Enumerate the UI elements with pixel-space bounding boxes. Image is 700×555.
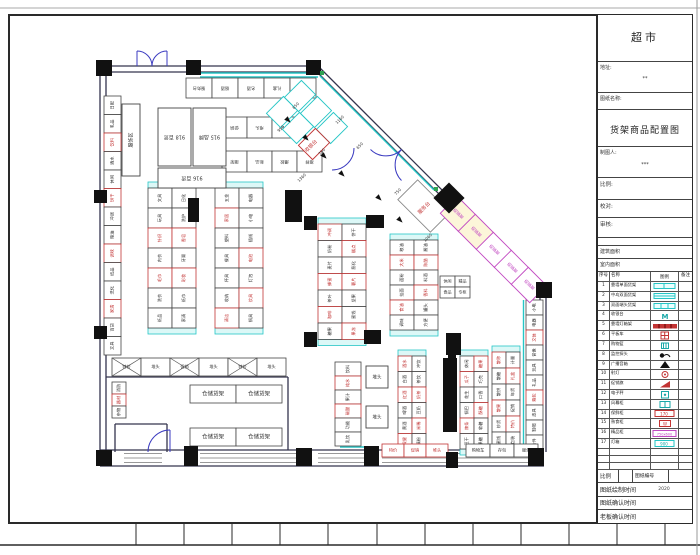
legend-row-name <box>609 456 650 462</box>
shelf-cell-label: 家清 <box>109 305 116 313</box>
blocked-fixture <box>443 358 457 432</box>
shelf-cell-label: 乳品 <box>109 120 116 128</box>
shelf-cell-label: 小电 <box>247 213 254 222</box>
shelf-cell-label: 端架 <box>230 159 238 166</box>
legend-row-name: 风幕柜 <box>609 400 650 409</box>
shelf-cell-label: 礼品 <box>531 378 538 386</box>
shelf-cell-label: 酒水 <box>109 156 116 165</box>
shelf-cell-label: 果汁 <box>344 392 351 401</box>
shelf-cell-label: 豆奶 <box>415 406 422 414</box>
shelf-cell-label: 米稀 <box>415 421 422 430</box>
boss-time-label: 老板确认时间 <box>598 510 636 523</box>
legend-row: 16精品柜750x600 <box>598 429 692 439</box>
shelf-cell-label: 果冻 <box>350 327 357 335</box>
shelf-cell-label: 酒水 <box>401 359 408 368</box>
legend-row: 17灯箱900 <box>598 439 692 449</box>
legend-row-symbol <box>650 370 678 379</box>
legend-row-note <box>678 419 692 428</box>
gondola-endcap <box>215 328 263 334</box>
shelf-cell-label: 糖果 <box>477 359 484 368</box>
legend-row-note <box>678 282 692 291</box>
shelf-cell-label: 休闲 <box>463 360 470 368</box>
shelf-cell-label: 粮油 <box>398 243 405 251</box>
legend-row: 12电子秤 <box>598 390 692 400</box>
footer-scale-label: 比例 <box>598 470 618 482</box>
legend-row-no: 8 <box>598 351 609 360</box>
legend-row-name: 平板车 <box>609 331 650 340</box>
fixture-box-label: 915 品牌 <box>199 134 220 141</box>
column <box>364 446 379 466</box>
scale-label: 比例: <box>600 180 613 188</box>
titleblock-building-area-row: 建筑面积 <box>598 246 692 259</box>
blocked-fixture <box>188 198 199 222</box>
shelf-cell-label: 堆头 <box>433 447 441 454</box>
shelf-cell-label: 口香 <box>477 390 484 399</box>
shelf-cell-label: 日化 <box>180 193 187 202</box>
legend-row-name: 熟食柜 <box>609 419 650 428</box>
shelf-cell-label: 购物车 <box>472 447 485 454</box>
shelf-cell-label: 咖啡 <box>326 310 333 319</box>
dimension-label: 750 <box>393 187 402 196</box>
shelf-cell-label: 冲饮 <box>415 359 422 368</box>
legend-row-no: 2 <box>598 292 609 301</box>
column <box>94 190 107 203</box>
dimension-arrow <box>338 170 346 178</box>
shelf-cell-label: 蜜饯 <box>350 311 357 319</box>
legend-row: 9广播音箱 <box>598 361 692 371</box>
shelf-cell-label: 堆头 <box>209 363 217 370</box>
titleblock-drafter-row: 制图人: *** <box>598 147 692 178</box>
legend-row-no: 5 <box>598 321 609 330</box>
legend-col-no: 序号 <box>598 272 609 281</box>
legend-col-sym: 图例 <box>650 272 678 281</box>
legend-row-no: 10 <box>598 370 609 379</box>
legend-row-no: 7 <box>598 341 609 350</box>
shelf-cell-label: 蜜饯 <box>495 436 502 444</box>
draw-time-row: 图纸绘制时间 2020 <box>598 483 692 497</box>
legend-row-note <box>678 439 692 448</box>
shelf-cell-label: 黄酒 <box>401 422 408 430</box>
shelf-cell-label: 奶茶 <box>415 390 422 399</box>
shelf-cell-label: 小电 <box>531 303 538 312</box>
shelf-cell-label: 奶粉 <box>326 244 333 253</box>
svg-text:M: M <box>661 313 668 320</box>
door-jamb-mark <box>320 71 324 75</box>
legend-row-name: 广播音箱 <box>609 361 650 370</box>
titleblock-proof-row: 校对: <box>598 200 692 218</box>
legend-row-symbol <box>650 463 678 469</box>
shelf-cell-label: 文具 <box>109 341 116 350</box>
legend-row-symbol <box>650 292 678 301</box>
fixture-box-label: 堆头 <box>373 414 382 421</box>
legend-row: 14保鲜柜170 <box>598 410 692 420</box>
shelf-cell-label: 纯水 <box>344 378 350 387</box>
shelf-cell-label: 新品 <box>255 159 263 166</box>
shelf-cell-label: 年货 <box>509 388 516 396</box>
titleblock-review-row: 审核: <box>598 218 692 238</box>
shelf-cell-label: 辣条 <box>463 421 470 430</box>
shelf-cell-label: 仓储货架 <box>202 433 225 441</box>
legend-row-note <box>678 292 692 301</box>
drawing-no-label: 图纸编号 <box>632 470 668 482</box>
blocked-fixture <box>448 352 456 364</box>
legend-row-name <box>609 463 650 469</box>
shelf-cell-label: 仓储货架 <box>248 433 271 441</box>
titleblock-project-row: 超市 <box>598 15 692 62</box>
fixture-box-label: 916 百货 <box>181 175 202 182</box>
legend-row <box>598 449 692 456</box>
shelf-cell-label: 特价 <box>389 447 398 453</box>
legend-row-name: 射灯 <box>609 370 650 379</box>
address-value: ** <box>598 76 692 82</box>
shelf-cell-label: 啤酒 <box>401 406 408 414</box>
dimension-arrow <box>375 194 383 202</box>
shelf-cell-label: 粮油 <box>109 231 116 239</box>
shelf-cell-label: 挂面 <box>398 288 405 296</box>
shelf-cell-label: 锅具 <box>247 313 254 322</box>
drafter-value: *** <box>598 162 692 168</box>
legend-row-symbol <box>650 380 678 389</box>
shelf-cell-label: 料酒 <box>422 273 429 281</box>
shelf-cell-label: 洗护 <box>180 214 187 222</box>
legend-table: 1靠墙单面货架2中岛双面货架3双面端头货架4收银台M5靠墙灯箱架6平板车7购物篮… <box>598 282 692 470</box>
legend-row: 4收银台M <box>598 311 692 321</box>
shelf-cell-label: 大米 <box>398 258 405 267</box>
legend-row-symbol <box>650 449 678 455</box>
column <box>306 60 321 75</box>
legend-row <box>598 456 692 463</box>
shelf-cell-label: 仓储货架 <box>202 390 225 398</box>
legend-row: 15熟食柜W <box>598 419 692 429</box>
shelf-cell-label: 炊具 <box>247 293 254 302</box>
shelf-cell-label: 散糖 <box>495 371 502 380</box>
shelf-cell-label: 散称 <box>495 356 502 364</box>
shelf-cell-label: 洗化 <box>109 285 116 294</box>
legend-row-no: 13 <box>598 400 609 409</box>
shelf-cell-label: 塑料 <box>223 233 230 242</box>
shelf-cell-label: 电器 <box>247 193 254 202</box>
shelf-cell-label: 饮料 <box>344 364 351 373</box>
shelf-cell-label: 香料 <box>422 288 429 297</box>
blocked-fixture <box>285 190 302 222</box>
legend-row: 10射灯 <box>598 370 692 380</box>
shelf-cell-label: 茶饮 <box>415 374 422 383</box>
confirm-time-label: 图纸确认时间 <box>598 497 636 509</box>
legend-row-name: 收银台 <box>609 311 650 320</box>
shelf-cell-label: 存包 <box>498 447 507 453</box>
shelf-cell-label: 饼干 <box>109 194 116 202</box>
shelf-cell-label: 休闲 <box>109 175 116 183</box>
shelf-cell-label: 红酒 <box>401 391 408 399</box>
shelf-cell-label: 炒货 <box>495 420 502 428</box>
shelf-cell-label: 促销 <box>230 125 238 132</box>
confirm-time-row: 图纸确认时间 <box>598 497 692 510</box>
gondola-endcap <box>390 330 438 336</box>
column <box>96 450 112 466</box>
shelf-cell-label: 乳饮 <box>344 434 351 443</box>
shelf-cell-label: 香皂 <box>180 234 187 242</box>
legend-row-name: 靠墙单面货架 <box>609 282 650 291</box>
shelf-cell-label: 纸品 <box>156 314 163 322</box>
legend-row: 1靠墙单面货架 <box>598 282 692 292</box>
legend-row-note <box>678 463 692 469</box>
legend-row-no: 4 <box>598 311 609 320</box>
shelf-cell-label: 服务台 <box>193 85 206 92</box>
gondola-endcap <box>148 328 196 334</box>
shelf-cell-label: 清洁 <box>223 314 230 322</box>
legend-row: 13风幕柜 <box>598 400 692 410</box>
legend-row-symbol <box>650 351 678 360</box>
column <box>94 326 107 339</box>
legend-row-name: 保鲜柜 <box>609 410 650 419</box>
legend-row-symbol <box>650 302 678 311</box>
legend-row-no <box>598 449 609 455</box>
legend-row-symbol <box>650 331 678 340</box>
svg-text:W: W <box>663 422 667 427</box>
titleblock-interior-area-row: 室内面积 <box>598 259 692 272</box>
interior-area-label: 室内面积 <box>600 261 620 268</box>
gondola-endcap <box>492 346 520 352</box>
project-title: 超市 <box>598 29 692 45</box>
shelf-cell-label: 烟酒 <box>221 85 229 92</box>
shelf-cell-label: 特价 <box>509 419 515 428</box>
title-block: 超市 地址: ** 图纸名称: 货架商品配置图 制图人: *** 比例: 校对:… <box>596 15 692 523</box>
legend-row-note <box>678 370 692 379</box>
legend-row-symbol: 170 <box>650 410 678 419</box>
shelf-cell-label: 洗衣 <box>156 293 163 302</box>
shelf-cell-label: 堆头 <box>267 363 275 370</box>
shelf-cell-label: 礼盒 <box>509 371 516 380</box>
shelf-cell-label: 礼盒 <box>272 85 281 92</box>
door-arc <box>332 148 354 170</box>
drawing-no-value <box>668 470 692 482</box>
shelf-cell-label: 面粉 <box>398 273 405 282</box>
drawing-name-label: 图纸名称: <box>600 95 622 102</box>
titleblock-dwgtitle-row: 货架商品配置图 <box>598 110 692 147</box>
legend-row-no: 17 <box>598 439 609 448</box>
shelf-cell-label: 冲调 <box>109 212 116 220</box>
legend-row-note <box>678 390 692 399</box>
shelf-cell-label: 薯片 <box>350 278 357 286</box>
gondola-endcap <box>398 350 426 356</box>
legend-row-note <box>678 456 692 462</box>
shelf-cell-label: 食油 <box>398 303 405 311</box>
legend-row-no: 9 <box>598 361 609 370</box>
dimension-label: 650 <box>355 141 364 150</box>
footer-number-row: 比例 图纸编号 <box>598 470 692 483</box>
column <box>364 330 381 344</box>
boss-time-row: 老板确认时间 <box>598 510 692 523</box>
legend-row-symbol: 750x600 <box>650 429 678 438</box>
shelf-cell-label: 文具 <box>156 193 163 202</box>
shelf-cell-label: 仓储货架 <box>248 390 271 398</box>
column <box>296 448 312 466</box>
legend-row-no: 12 <box>598 390 609 399</box>
legend-row-note <box>678 380 692 389</box>
legend-row-no: 15 <box>598 419 609 428</box>
legend-row-symbol <box>650 321 678 330</box>
legend-row-symbol <box>650 390 678 399</box>
address-label: 地址: <box>600 64 612 71</box>
shelf-cell-label: 促销 <box>180 363 188 370</box>
shelf-cell-label: 饼干 <box>350 228 357 236</box>
legend-row-no: 6 <box>598 331 609 340</box>
shelf-cell-label: 爆款 <box>280 159 289 166</box>
legend-row-note <box>678 361 692 370</box>
shelf-cell-label: 蜂蜜 <box>326 278 333 286</box>
shelf-cell-label: 软糖 <box>477 421 484 430</box>
shelf-cell-label: 堆头 <box>255 125 263 132</box>
legend-row-no: 11 <box>598 380 609 389</box>
shelf-cell-label: 堆头 <box>151 363 159 370</box>
shelf-cell-label: 散饼 <box>495 388 502 396</box>
shelf-cell-label: 杂物 <box>115 408 122 416</box>
legend-row-no <box>598 463 609 469</box>
shelf-cell-label: 陈醋 <box>422 258 429 266</box>
shelf-cell-label: 方便 <box>422 318 429 327</box>
gondola-endcap <box>460 350 488 356</box>
column <box>304 216 317 230</box>
legend-col-name: 名称 <box>609 272 650 281</box>
shelf-cell-label: 家清 <box>180 314 187 322</box>
shelf-cell-label: 食品 <box>444 289 452 295</box>
legend-row-note <box>678 302 692 311</box>
shelf-cell-label: 专柜 <box>459 289 467 295</box>
shelf-cell-label: 白酒 <box>401 375 408 383</box>
svg-text:170: 170 <box>660 412 668 417</box>
shelf-cell-label: 调味 <box>109 248 116 257</box>
shelf-cell-label: 冲调 <box>326 228 333 236</box>
legend-row-name: 购物篮 <box>609 341 650 350</box>
svg-text:750x600: 750x600 <box>656 432 671 436</box>
legend-row-note <box>678 321 692 330</box>
shelf-cell-label: 皮具 <box>531 408 538 417</box>
shelf-cell-label: 糖果 <box>326 326 333 335</box>
shelf-cell-label: 针织 <box>156 234 163 242</box>
shelf-cell-label: 精品 <box>459 278 467 284</box>
shelf-cell-label: 碳酸 <box>344 406 351 415</box>
shelf-cell-label: 坚果 <box>350 293 357 302</box>
legend-row-name: 双面端头货架 <box>609 302 650 311</box>
legend-row-name: 电子秤 <box>609 390 650 399</box>
shelf-cell-label: 茶叶 <box>326 293 333 302</box>
legend-row-note <box>678 331 692 340</box>
shelf-cell-label: 特价 <box>122 363 131 369</box>
shelf-cell-label: 内衣 <box>156 253 163 262</box>
legend-row-note <box>678 429 692 438</box>
shelf-cell-label: 罐头 <box>422 303 429 311</box>
legend-row-note <box>678 341 692 350</box>
column <box>528 448 544 466</box>
shelf-cell-label: 饮料 <box>109 137 116 146</box>
shelf-cell-label: 音像 <box>531 348 538 357</box>
shelf-cell-label: 电池 <box>247 253 253 262</box>
shelf-cell-label: 酥糖 <box>477 405 484 414</box>
dimension-arrow <box>396 216 404 224</box>
legend-row-name: 靠墙灯箱架 <box>609 321 650 330</box>
shelf-cell-label: 包装 <box>509 435 516 444</box>
draw-time-label: 图纸绘制时间 <box>598 483 636 496</box>
gondola-endcap <box>318 218 366 224</box>
shelf-cell-label: 五金 <box>223 193 229 202</box>
legend-row-symbol <box>650 456 678 462</box>
column <box>96 60 112 76</box>
shelf-cell-label: 百货 <box>109 323 116 331</box>
legend-row-name: 促销旗 <box>609 380 650 389</box>
review-label: 审核: <box>600 220 613 228</box>
shelf-cell-label: 毛巾 <box>156 274 163 282</box>
shelf-cell-label: 收纳 <box>223 294 230 302</box>
legend-row-symbol: 900 <box>650 439 678 448</box>
column <box>186 60 201 75</box>
legend-col-note: 备注 <box>678 272 692 281</box>
legend-row-no <box>598 456 609 462</box>
shelf-cell-label: 计量 <box>509 356 516 364</box>
legend-row-note <box>678 400 692 409</box>
shelf-cell-label: 杯具 <box>223 273 230 282</box>
column <box>304 332 317 347</box>
shelf-cell-label: 瓜子 <box>463 375 469 383</box>
shelf-cell-label: 纸品 <box>109 268 116 276</box>
column <box>536 282 552 298</box>
shelf-cell-label: 消防 <box>115 384 122 392</box>
legend-row-note <box>678 410 692 419</box>
shelf-cell-label: 灯泡 <box>247 273 254 282</box>
shelf-cell-label: 牙膏 <box>180 254 187 262</box>
legend-row-no: 14 <box>598 410 609 419</box>
footer-scale-value <box>618 470 632 482</box>
legend-row-no: 16 <box>598 429 609 438</box>
legend-row <box>598 463 692 470</box>
legend-row: 2中岛双面货架 <box>598 292 692 302</box>
shelf-cell-label: 功能 <box>344 420 351 429</box>
shelf-cell-label: 促销 <box>411 447 419 454</box>
building-area-label: 建筑面积 <box>600 248 620 255</box>
legend-row: 5靠墙灯箱架 <box>598 321 692 331</box>
legend-row-name: 监控探头 <box>609 351 650 360</box>
drawing-sheet: { "title_block": { "supermarket": "超市", … <box>0 0 700 555</box>
shelf-cell-label: 休闲 <box>444 278 452 284</box>
door-arc <box>371 150 402 156</box>
legend-row-symbol <box>650 361 678 370</box>
legend-row-note <box>678 449 692 455</box>
gondola-endcap <box>318 340 366 346</box>
column <box>446 333 461 355</box>
drawing-title: 货架商品配置图 <box>598 123 692 136</box>
legend-header: 序号 名称 图例 备注 <box>598 272 692 282</box>
dimension-label: 1360 <box>296 172 307 183</box>
door-arc <box>152 51 167 66</box>
legend-row-note <box>678 351 692 360</box>
shelf-cell-label: 花生 <box>463 391 470 399</box>
shelf-cell-label: 麦片 <box>326 261 333 269</box>
fixture-box-label: 堆头 <box>373 374 382 381</box>
shelf-cell-label: 糕点 <box>350 245 357 253</box>
shelf-cell-label: 器材 <box>115 396 122 404</box>
shelf-cell-label: 文体 <box>531 333 538 342</box>
legend-row-no: 1 <box>598 282 609 291</box>
fixture-box-label: 服饰区 <box>128 132 135 147</box>
legend-row-symbol: M <box>650 311 678 320</box>
legend-row-symbol <box>650 341 678 350</box>
legend-row-note <box>678 311 692 320</box>
column <box>184 446 198 466</box>
shelf-cell-label: 箱包 <box>531 393 538 402</box>
floor-plan: 日配乳品饮料酒水休闲饼干冲调粮油调味纸品洗化家清百货文具服务台烟酒名酒礼盒保健促… <box>0 0 700 555</box>
legend-row-no: 3 <box>598 302 609 311</box>
fixture-box-label: 918 百货 <box>164 134 185 141</box>
shelf-cell-label: 锅巴 <box>463 406 470 414</box>
